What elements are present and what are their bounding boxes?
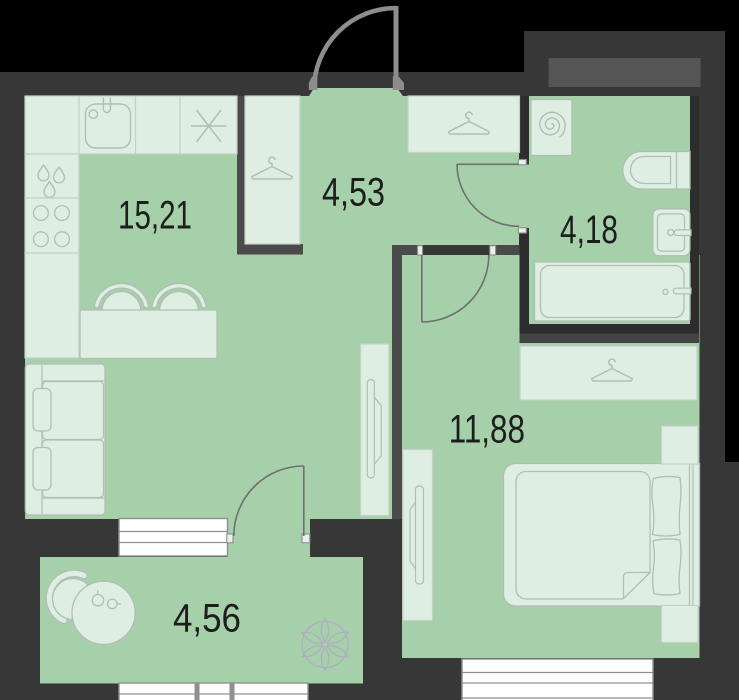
svg-text:4,56: 4,56: [173, 597, 241, 641]
svg-text:11,88: 11,88: [449, 408, 525, 452]
svg-text:4,53: 4,53: [322, 171, 385, 215]
svg-text:15,21: 15,21: [118, 194, 192, 238]
svg-text:4,18: 4,18: [560, 208, 618, 252]
